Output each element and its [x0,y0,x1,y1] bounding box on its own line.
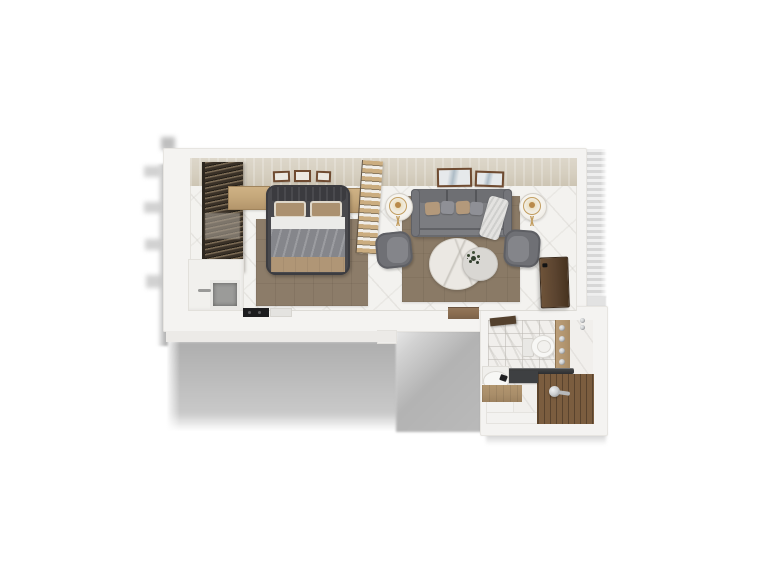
throw-pillow [425,201,441,215]
shower-knob [559,359,565,365]
side-table-right-legs [522,216,542,226]
wall-accessory [580,318,585,323]
bottom-wall-face [166,331,396,342]
shower-knob [559,348,565,354]
shower-knob [559,336,565,342]
wall-frame [294,170,311,182]
wall-frame [437,168,472,188]
armchair-left-seat [387,237,408,263]
kitchen-faucet [198,289,211,292]
table-lamp-left [395,202,401,208]
wall-frame [273,171,290,183]
bed-pillow-right [310,201,342,218]
armchair-right-seat [508,236,529,262]
doorway-threshold [448,307,479,319]
sofa-armrest-left [411,189,420,237]
kitchen-sink [210,280,240,309]
top-wall-inner-face [190,158,577,187]
entry-door-leaf [539,257,570,309]
table-plant [471,256,476,261]
appliance-front [270,308,292,317]
bed-foot-runner [271,257,345,272]
floorplan-canvas [0,0,768,581]
bathroom-dark-counter [507,371,538,383]
bed-blanket [271,229,345,258]
throw-pillow [441,201,455,215]
side-table-left-legs [388,216,408,226]
shadow-smudge [146,275,164,288]
toilet-seat [537,340,551,353]
shadow-smudge [144,166,161,177]
bed-headboard [270,187,346,201]
vanity-wood-counter [482,385,522,402]
wall-frame [316,171,331,183]
corridor-cast-shadow [396,329,484,432]
throw-pillow [456,201,471,215]
table-lamp-right [529,202,535,208]
shadow-smudge [144,202,162,213]
cooktop-knob [248,311,251,314]
headboard-cabinet-left [228,186,270,210]
door-handle [542,263,547,267]
shower-wood-floor [537,374,594,424]
bottom-cast-shadow [166,341,398,431]
cooktop-knob [258,311,261,314]
bathroom-wall-notch [486,412,540,424]
right-striped-shadow [586,149,607,298]
cooktop [243,308,269,317]
shadow-smudge [145,239,162,250]
sheer-curtain [205,213,240,239]
wall-accessory [580,325,585,330]
wall-frame [475,170,505,187]
bed-pillow-left [274,201,306,218]
nesting-side-table [462,247,498,281]
throw-pillow [470,202,484,216]
shower-knob [559,325,565,331]
